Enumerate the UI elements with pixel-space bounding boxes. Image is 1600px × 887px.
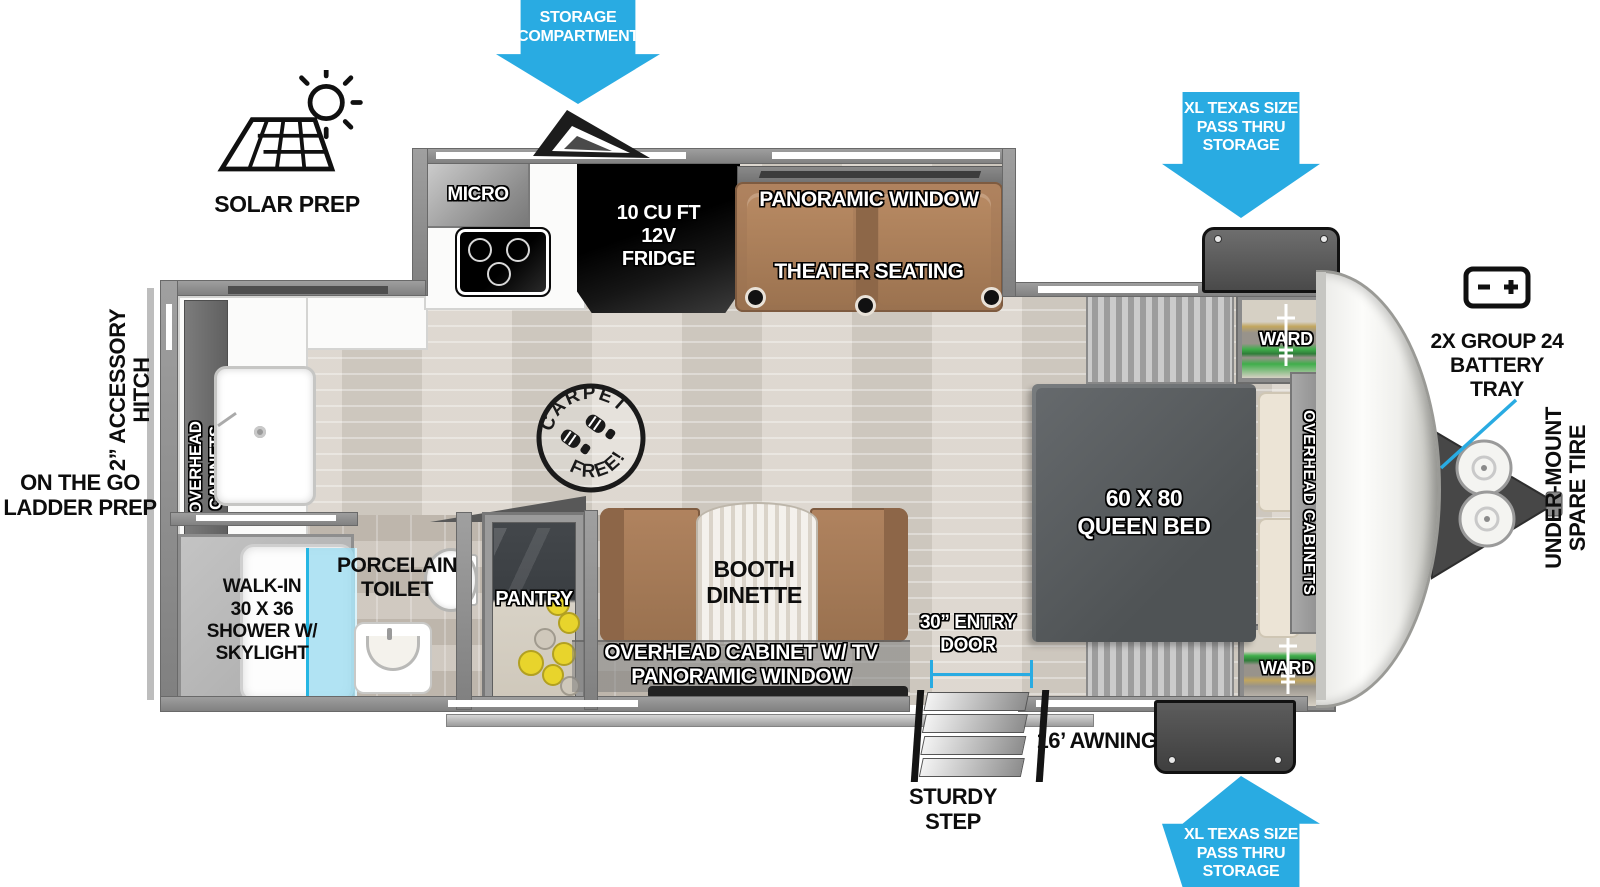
propane-tank-valve — [1473, 457, 1495, 479]
propane-tank-dot — [1484, 516, 1490, 522]
nightstand-bottom — [1086, 640, 1234, 698]
burner-icon — [487, 262, 511, 286]
screw-icon — [1169, 757, 1175, 763]
pass-thru-arrow-top-text: XL TEXAS SIZE PASS THRU STORAGE — [1162, 95, 1320, 161]
theater-seating-label: THEATER SEATING — [735, 258, 1003, 286]
spare-tire-label: UNDER-MOUNT SPARE TIRE — [1538, 403, 1594, 573]
front-cap-seam — [1316, 272, 1326, 700]
storage-compartment-arrow: STORAGE COMPARTMENT — [496, 0, 660, 104]
burner-icon — [468, 238, 492, 262]
kitchen-sink-drain — [254, 426, 266, 438]
propane-tank-valve — [1476, 508, 1498, 530]
entry-door-bracket — [932, 673, 1032, 676]
window-slit — [436, 152, 686, 159]
pass-thru-arrow-bottom: XL TEXAS SIZE PASS THRU STORAGE — [1162, 776, 1320, 887]
propane-tank — [1460, 492, 1514, 546]
wall-pantry-left — [584, 510, 598, 710]
queen-bed: 60 X 80 QUEEN BED — [1032, 384, 1256, 642]
battery-tray-label: 2X GROUP 24 BATTERY TRAY — [1412, 326, 1582, 406]
dinette-armrest-left — [600, 508, 624, 642]
booth-dinette-label: BOOTH DINETTE — [664, 550, 844, 614]
cupholder-icon — [858, 298, 873, 313]
pantry-label: PANTRY — [482, 586, 586, 612]
step-tread — [919, 758, 1025, 777]
nightstand-top — [1086, 284, 1234, 384]
entry-door-label: 30” ENTRY DOOR — [898, 608, 1038, 662]
accessory-hitch-label: 2” ACCESSORY HITCH — [104, 295, 156, 485]
solar-prep-icon — [216, 70, 368, 192]
window-slit — [196, 515, 336, 521]
can — [534, 628, 556, 650]
panoramic-window-label: PANORAMIC WINDOW — [735, 186, 1003, 214]
window-slit — [166, 304, 172, 350]
cupholder-icon — [984, 290, 999, 305]
floorplan-canvas: OVERHEAD CABINETS MICRO 10 CU FT 12V FRI… — [0, 0, 1600, 887]
pass-thru-arrow-top: XL TEXAS SIZE PASS THRU STORAGE — [1162, 92, 1320, 218]
overhead-cabinet-tv-label: OVERHEAD CABINET W/ TV — [556, 641, 926, 665]
screw-icon — [1215, 236, 1221, 242]
storage-compartment-arrow-text: STORAGE COMPARTMENT — [496, 3, 660, 53]
vent-slit — [228, 286, 388, 294]
propane-tank-dot — [1481, 465, 1487, 471]
burner-icon — [506, 238, 530, 262]
theater-window-slit — [759, 171, 981, 178]
kitchen-sink — [214, 366, 316, 506]
window-slit — [772, 152, 1000, 159]
entry-steps — [911, 690, 1049, 782]
step-tread — [920, 736, 1026, 755]
cupholder-icon — [748, 290, 763, 305]
wall-bathroom-divider — [456, 512, 472, 710]
solar-prep-label: SOLAR PREP — [192, 190, 382, 218]
window-slit — [448, 700, 638, 707]
pantry-shelf-streak — [494, 528, 572, 594]
step-tread — [923, 692, 1029, 711]
wall-galley-left — [412, 148, 428, 296]
toilet-label: PORCELAIN TOILET — [322, 550, 472, 606]
window-slit — [1038, 286, 1198, 293]
hanger-rod-icon — [1278, 632, 1298, 696]
fridge: 10 CU FT 12V FRIDGE — [577, 159, 740, 313]
wall-step-vertical — [1002, 148, 1016, 297]
battery-pointer-line — [1441, 400, 1516, 468]
sturdy-step-label: STURDY STEP — [888, 780, 1018, 838]
bath-faucet-icon — [387, 628, 392, 640]
ladder-prep-label: ON THE GO LADDER PREP — [0, 466, 160, 524]
hanger-rod-icon — [1276, 302, 1296, 368]
pass-thru-arrow-bottom-text: XL TEXAS SIZE PASS THRU STORAGE — [1162, 823, 1320, 885]
battery-icon — [1462, 262, 1532, 312]
screw-icon — [1275, 757, 1281, 763]
screw-icon — [1321, 236, 1327, 242]
can — [518, 650, 544, 676]
can — [558, 612, 580, 634]
microwave: MICRO — [426, 162, 530, 228]
step-tread — [922, 714, 1028, 733]
propane-tank — [1457, 441, 1511, 495]
